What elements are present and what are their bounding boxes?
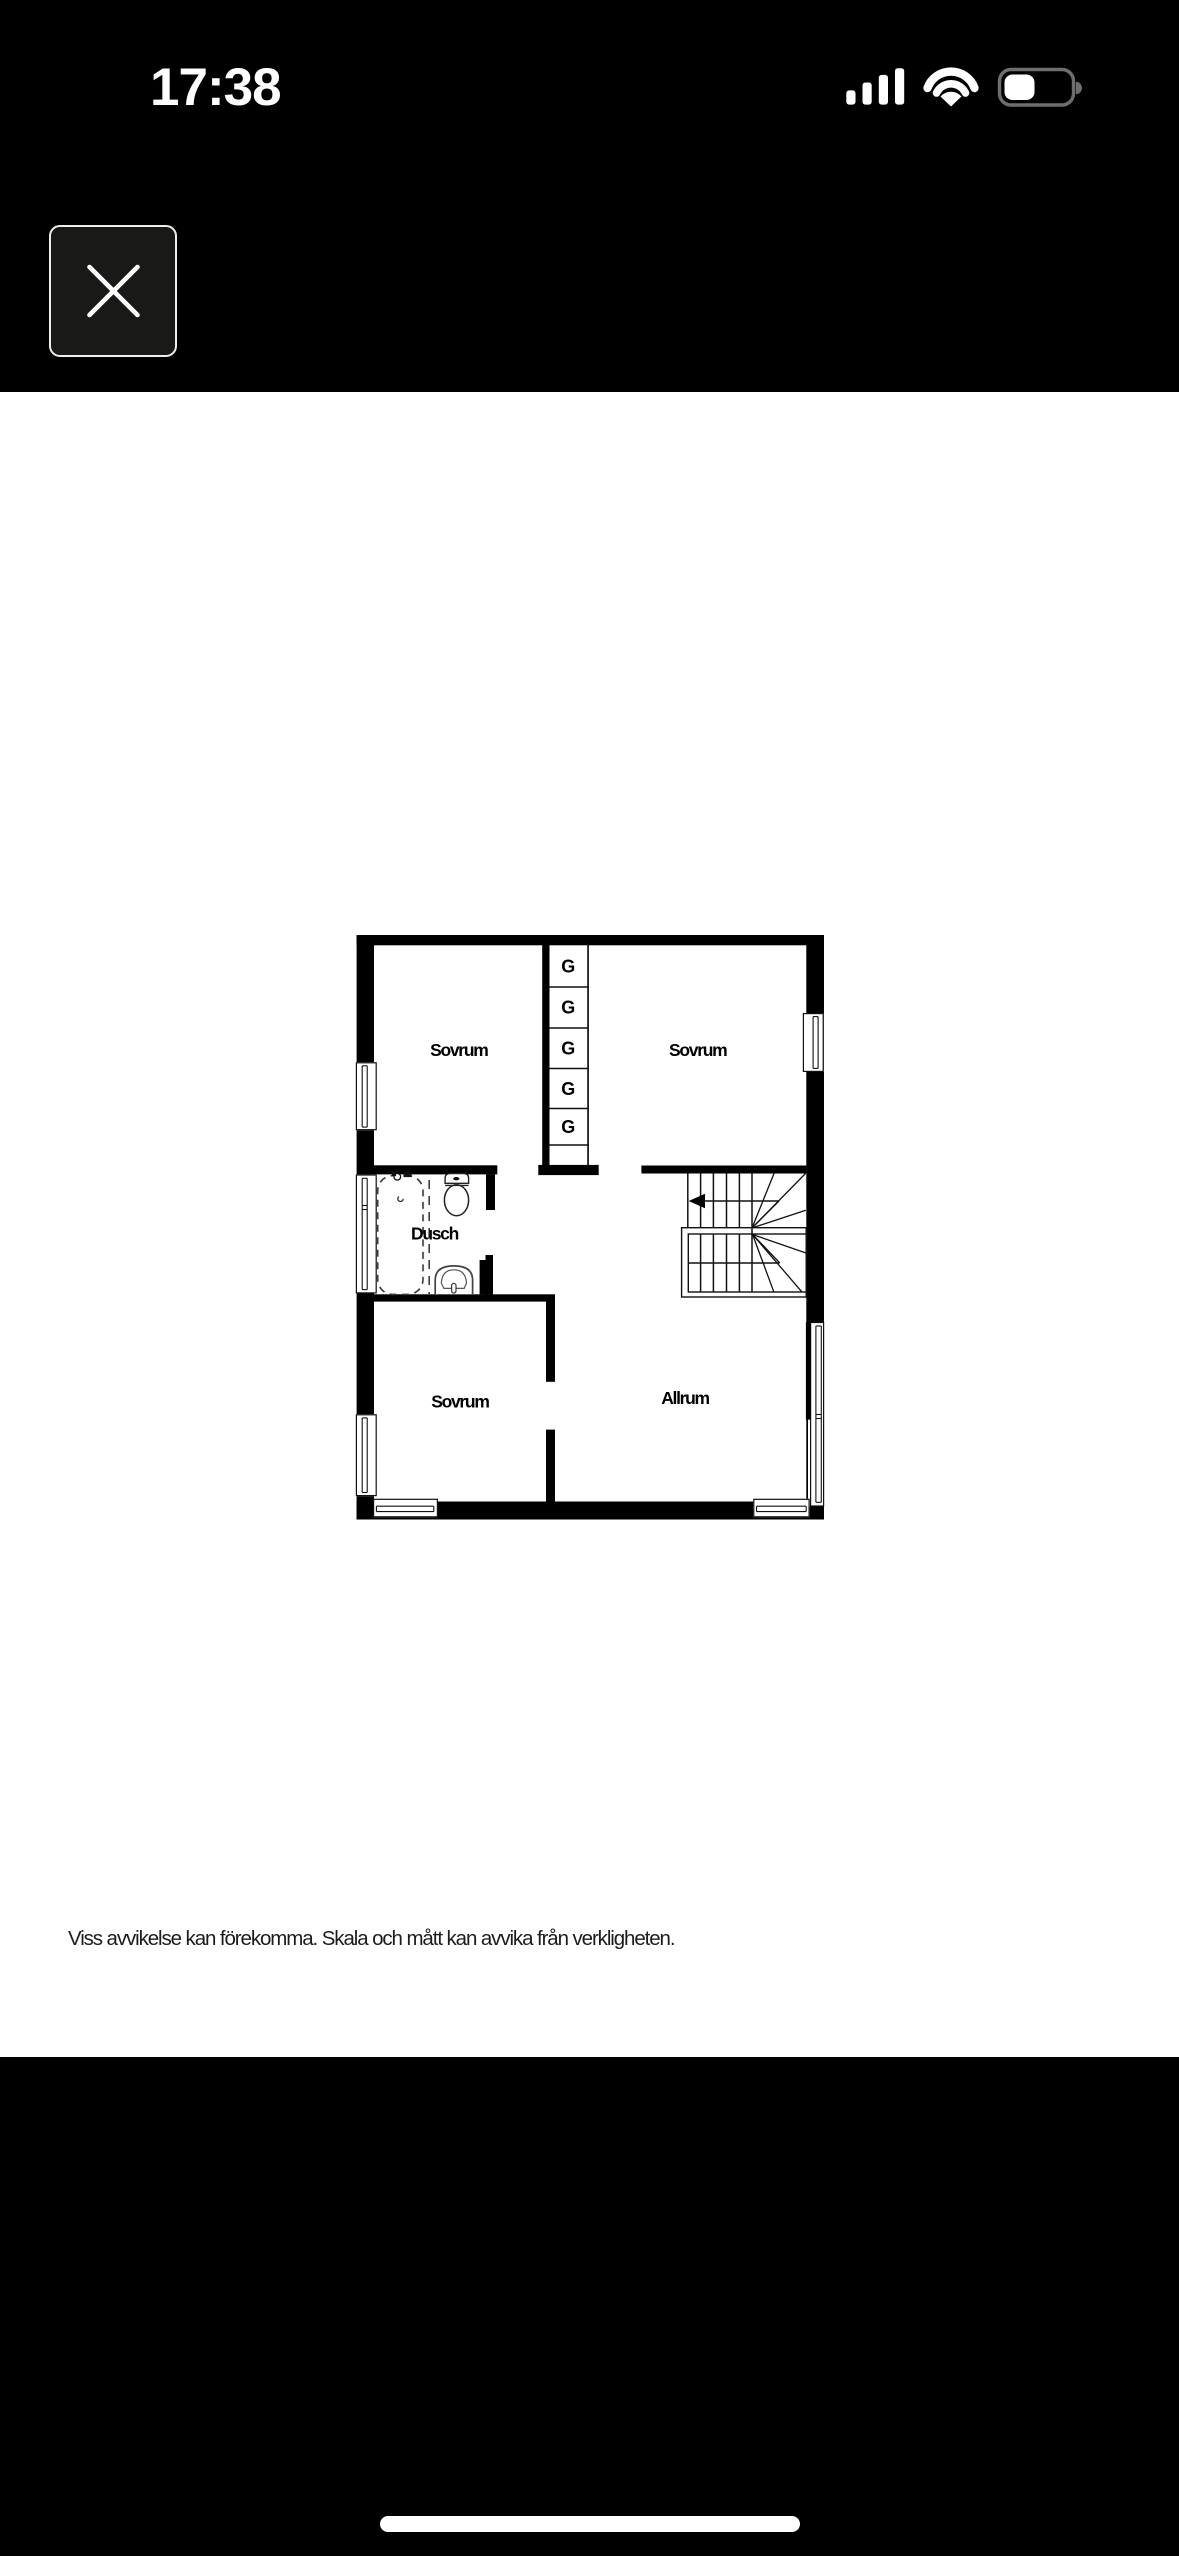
svg-text:G: G [561, 1039, 575, 1059]
svg-text:Sovrum: Sovrum [430, 1040, 488, 1060]
svg-text:G: G [561, 956, 575, 976]
svg-text:G: G [561, 1117, 575, 1137]
svg-text:Dusch: Dusch [411, 1224, 459, 1244]
svg-text:G: G [561, 1079, 575, 1099]
svg-text:Sovrum: Sovrum [431, 1391, 489, 1411]
svg-text:G: G [561, 998, 575, 1018]
svg-text:Allrum: Allrum [661, 1388, 709, 1408]
svg-text:Sovrum: Sovrum [669, 1040, 727, 1060]
